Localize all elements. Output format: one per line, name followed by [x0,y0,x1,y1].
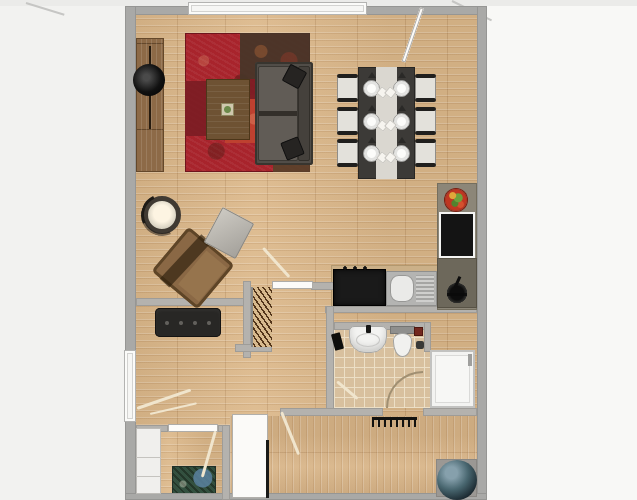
wall-bathroom-left [326,306,334,416]
wall-lower-right [423,408,477,416]
sofa-pillow [280,136,305,161]
window-top [188,2,367,15]
wall-living-stub [311,282,334,290]
toilet [390,326,415,357]
wall-bottom-rooms-divider [222,425,230,500]
coffee-table [206,79,250,140]
wall-bath-shower-divider [424,322,431,352]
place-setting [363,113,380,130]
wall-lower-left [280,408,383,416]
fruit-bowl [445,189,467,211]
dining-table [358,67,415,179]
sofa-pillow [282,64,308,90]
place-setting [393,80,410,97]
dining-chair [337,76,358,100]
dining-chair [337,141,358,165]
door-leaf-living-hall [272,281,313,289]
bathroom-sink [349,326,387,353]
place-setting [363,80,380,97]
kitchen-sink [386,271,437,306]
dining-chair [415,109,436,133]
kitchen-faucet [444,278,470,304]
wardrobe-white [136,428,161,494]
sofa [255,62,313,165]
shower [430,350,475,408]
appliance-black [439,212,475,258]
place-setting [393,113,410,130]
place-setting [363,145,380,162]
coat-rack [251,287,272,347]
sideboard [136,38,164,172]
door-leaf-bottomleft [168,424,218,432]
floor-lamp [143,196,181,234]
exterior-right [487,0,637,500]
cooktop [333,269,386,306]
doormat-rug [172,466,216,496]
radiator [372,417,417,427]
hallway-bench [155,308,221,337]
dining-chair [337,109,358,133]
place-setting [393,145,410,162]
door-edge-line [266,440,269,498]
wall-bottom [125,493,487,500]
dining-chair [415,76,436,100]
tv-disc [133,64,165,96]
floor-plan-canvas [0,0,637,500]
dining-chair [415,141,436,165]
open-door-panel [232,414,268,498]
window-left [124,350,136,422]
bathroom-shelf-item [414,327,423,336]
floor-pouf [437,460,477,500]
toilet-brush [416,341,424,349]
wall-right [477,6,487,500]
kitchen-corner-unit [437,258,477,308]
